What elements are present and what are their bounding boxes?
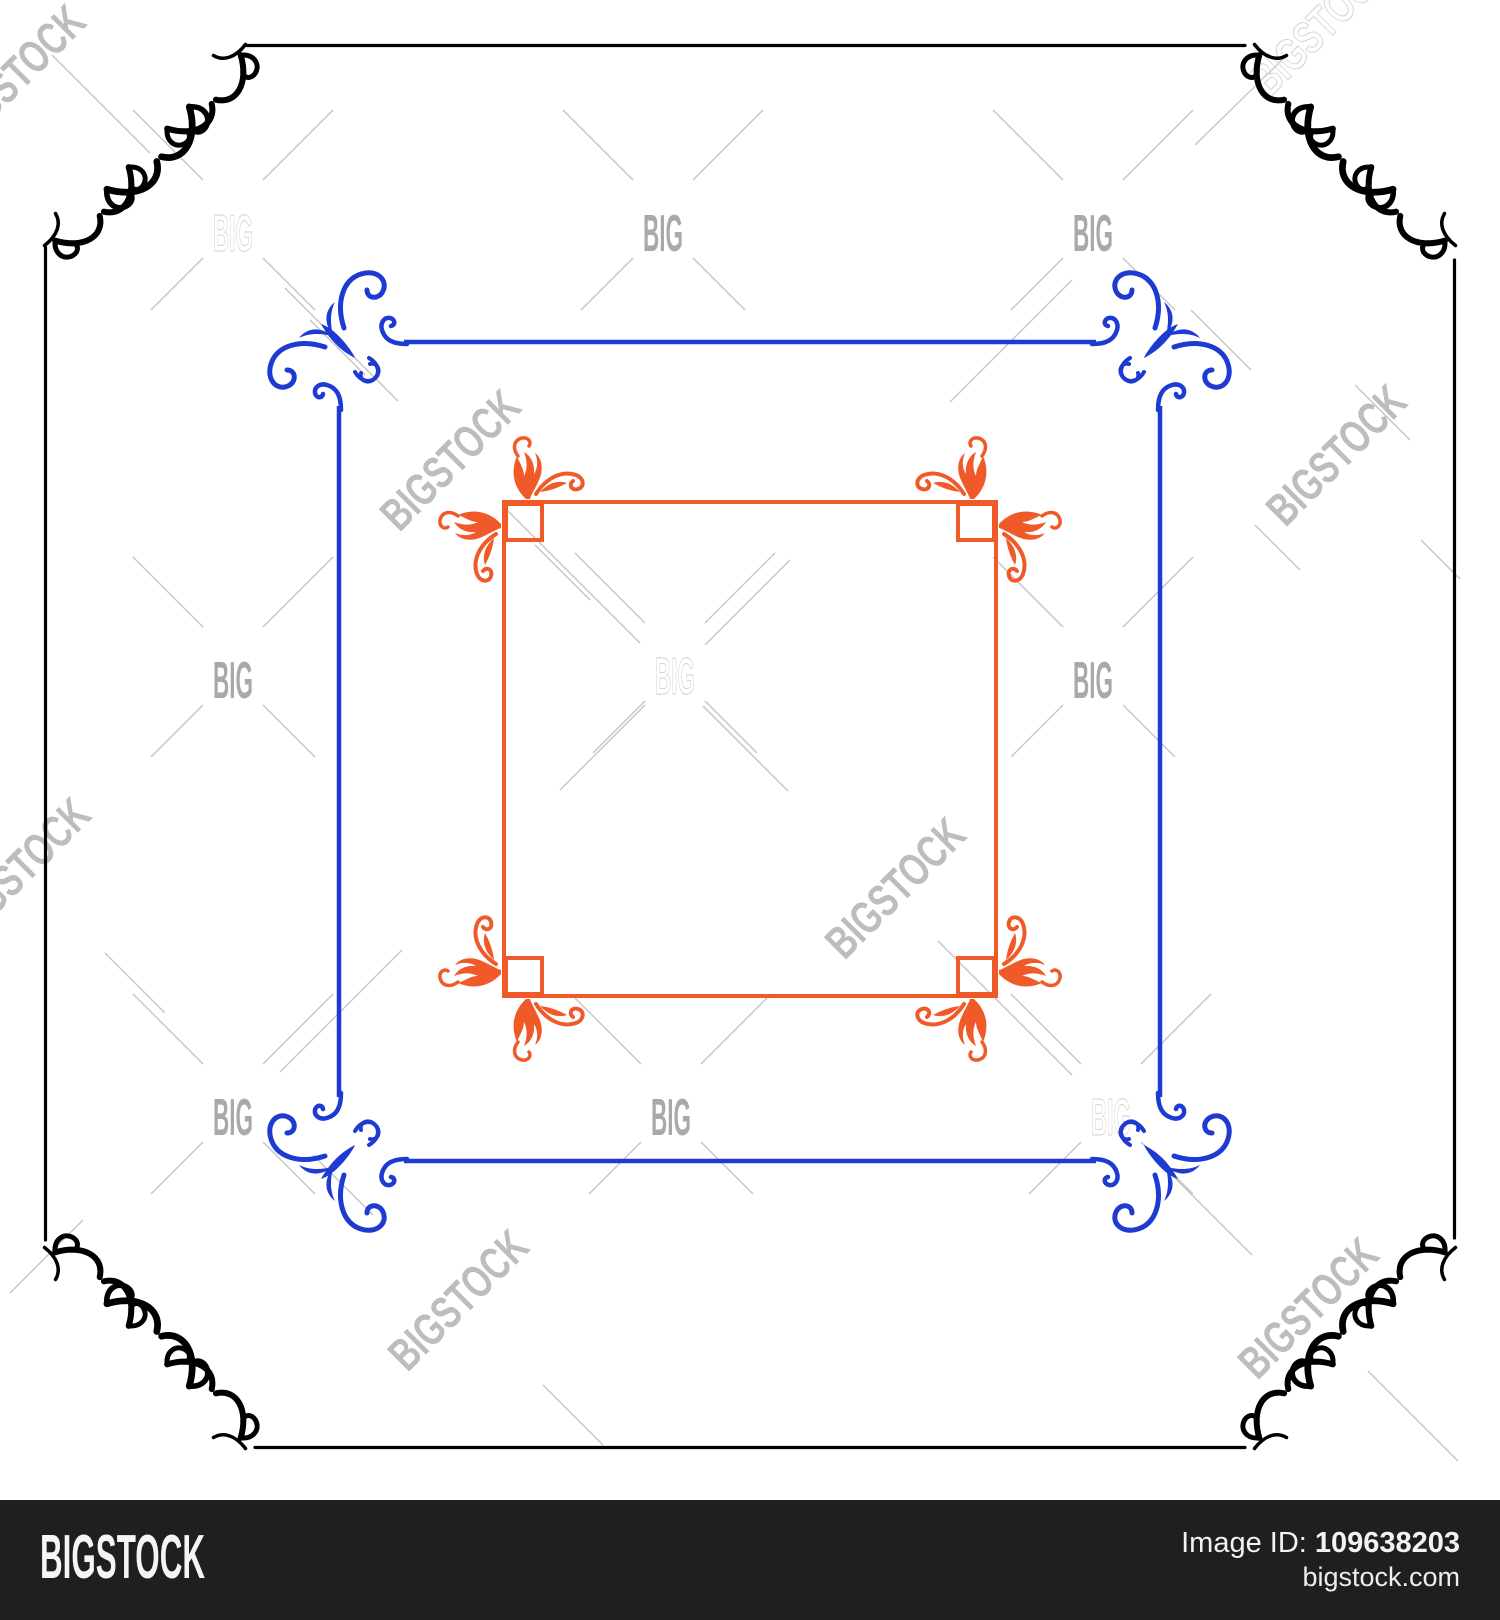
watermark-bigstock-text: BIGSTOCK [378,1220,539,1381]
watermark-line [560,705,645,790]
bigstock-logo-wrap: BIGSTOCK [40,1528,270,1592]
watermark-bigstock-text: BIGSTOCK [815,808,976,969]
ornamental-frames-graphic: BIG BIG BIG BIG BIG BIG BIG BIG BIG BIGS… [0,0,1500,1620]
watermark-line [563,110,633,180]
site-text: bigstock.com [1181,1561,1460,1593]
watermark-line [593,701,645,753]
watermark-line [535,545,590,600]
watermark-bigstock-text: BIGSTOCK [0,788,100,949]
orange-corner-ornament-bottom-right [917,917,1060,1060]
watermark-line [263,705,315,757]
watermark-line [543,1385,603,1445]
watermark-line [133,557,203,627]
watermark-line [151,1142,203,1194]
watermark-line [1011,994,1081,1064]
watermark-big-text: BIG [1073,205,1113,263]
watermark-line [703,706,788,791]
watermark-big-text: BIG [651,1089,691,1147]
watermark-line [1123,705,1175,757]
watermark-big-text: BIG [213,1089,253,1147]
watermark-line [993,557,1063,627]
watermark-bigstock-text: BIGSTOCK [1256,375,1417,536]
middle-blue-frame [270,273,1229,1230]
watermark-line [1011,705,1063,757]
orange-corner-ornament-bottom-left [440,917,583,1060]
black-corner-ornament-bottom-left [42,1216,277,1451]
watermark-line [705,553,775,623]
watermark-line [263,258,315,310]
black-corner-ornament-top-right [1223,42,1458,277]
watermark-bigstock-text: BIGSTOCK [0,0,95,155]
footer-meta: Image ID:109638203 bigstock.com [1181,1526,1460,1593]
watermark-line [571,994,641,1064]
watermark-big-text: BIG [655,648,695,706]
bigstock-logo: BIGSTOCK [40,1528,205,1592]
watermark-line [263,557,333,627]
watermark-line [693,110,763,180]
watermark-line [1141,994,1211,1064]
blue-corner-ornament-bottom-left [270,1093,407,1230]
footer-bar: BIGSTOCK Image ID:109638203 bigstock.com [0,1500,1500,1620]
watermark-line [52,55,150,153]
watermark-line [693,258,745,310]
watermark-line [151,705,203,757]
watermark-line [1123,110,1193,180]
stock-image-canvas: BIG BIG BIG BIG BIG BIG BIG BIG BIG BIGS… [0,0,1500,1620]
watermark-line [701,994,771,1064]
watermark-diagonal-lines [10,55,1460,1461]
inner-orange-frame [440,438,1060,1060]
watermark-big-text: BIG [1073,652,1113,710]
watermark-line [263,110,333,180]
watermark-line [1368,1371,1458,1461]
watermark-line [1191,310,1251,370]
image-id-value: 109638203 [1315,1527,1460,1559]
watermark-layer: BIG BIG BIG BIG BIG BIG BIG BIG BIG BIGS… [0,0,1460,1461]
watermark-line [1029,1142,1081,1194]
watermark-line [589,1142,641,1194]
watermark-big-outline-group: BIG BIG BIG [213,205,1131,1147]
watermark-line [993,110,1063,180]
watermark-line [705,560,790,645]
watermark-line [105,953,165,1013]
watermark-big-text: BIG [213,205,253,263]
blue-corner-ornament-top-right [1092,273,1229,410]
watermark-line [701,1142,753,1194]
watermark-big-text: BIG [213,652,253,710]
watermark-line [151,258,203,310]
watermark-line [133,994,203,1064]
watermark-line [705,701,757,753]
watermark-line [506,509,640,643]
watermark-line [1011,258,1063,310]
image-id-label: Image ID: [1181,1527,1307,1559]
orange-corner-ornament-top-right [917,438,1060,581]
watermark-line [581,258,633,310]
watermark-big-text: BIG [643,205,683,263]
orange-frame-rect [504,502,996,996]
